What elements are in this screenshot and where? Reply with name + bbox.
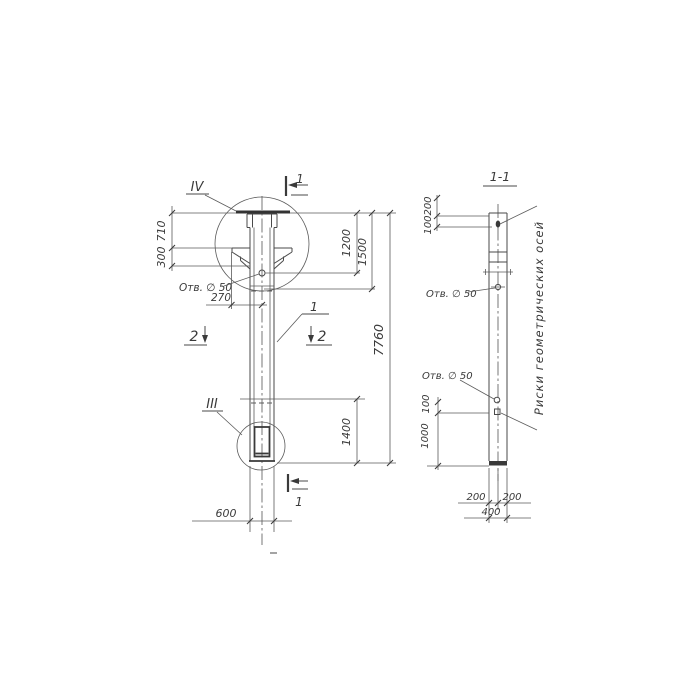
- dim-600-label: 600: [216, 507, 237, 520]
- dim-7760: 7760: [371, 210, 393, 466]
- dim-1200-label: 1200: [340, 229, 353, 257]
- dim-710-label: 710: [155, 221, 168, 242]
- axis-mark-top: [496, 221, 501, 228]
- dim-100-bottom-label: 100: [421, 394, 432, 413]
- dim-1000-label: 1000: [420, 423, 431, 448]
- part-label-text: 1: [310, 299, 318, 314]
- section-title: 1-1: [483, 169, 517, 186]
- dim-1500: 1500: [356, 210, 375, 292]
- right-bracket: [274, 248, 292, 269]
- dim-710-300: 710 300: [155, 206, 175, 271]
- dim-300-label: 300: [155, 247, 168, 268]
- dim-200-200-400: 200 200 400: [458, 468, 531, 523]
- hole-label-upper-text: Отв. ∅ 50: [426, 289, 477, 300]
- detail-label-IV-text: IV: [191, 180, 205, 195]
- dim-1400: 1400: [340, 396, 360, 466]
- dim-270-label: 270: [211, 292, 231, 304]
- section-cut-top-label: 1: [296, 172, 304, 186]
- column-head: [236, 212, 290, 228]
- section-cut-bottom: 1: [288, 474, 308, 509]
- hole-label-upper: Отв. ∅ 50: [426, 288, 495, 300]
- section-cut-2-left: 2: [184, 326, 208, 345]
- detail-label-III: III: [202, 397, 242, 435]
- dim-1400-label: 1400: [340, 418, 353, 446]
- section-title-text: 1-1: [490, 169, 510, 184]
- section-view: 1-1 Отв. ∅ 50 Отв: [420, 169, 546, 523]
- section-cut-2-left-label: 2: [190, 329, 199, 345]
- technical-drawing-canvas: IV III 1 1 2: [0, 0, 700, 700]
- axis-mark-bottom: [495, 409, 501, 415]
- section-cut-bottom-label: 1: [295, 495, 303, 509]
- dim-200-top-label: 200: [423, 196, 434, 215]
- dim-600: 600: [192, 507, 292, 524]
- dim-7760-label: 7760: [371, 324, 386, 356]
- dim-200-bl-label: 200: [466, 492, 485, 503]
- hole-label-main: Отв. ∅ 50: [179, 274, 259, 294]
- dim-1500-label: 1500: [356, 238, 369, 266]
- section-cut-2-right-label: 2: [318, 329, 327, 345]
- detail-label-III-text: III: [206, 397, 218, 412]
- detail-label-IV: IV: [186, 180, 236, 211]
- section-cut-2-right: 2: [306, 326, 332, 345]
- section-column-base: [489, 461, 507, 466]
- dim-270: 270: [206, 292, 267, 308]
- axis-note-text: Риски геометрических осей: [532, 221, 546, 415]
- dim-400-label: 400: [481, 507, 500, 518]
- column-drawing: IV III 1 1 2: [0, 0, 700, 700]
- dim-100-top-label: 100: [423, 215, 434, 234]
- hole-label-lower-text: Отв. ∅ 50: [422, 371, 473, 382]
- dim-200-br-label: 200: [502, 492, 521, 503]
- section-cut-top: 1: [286, 172, 308, 196]
- dim-200-100-top: 200 100: [423, 195, 492, 235]
- hole-lower: [494, 397, 500, 403]
- dim-100-1000-bottom: 100 1000: [420, 394, 489, 470]
- section-column: [483, 204, 513, 481]
- hole-label-lower: Отв. ∅ 50: [422, 371, 494, 399]
- main-view: IV III 1 1 2: [155, 172, 396, 553]
